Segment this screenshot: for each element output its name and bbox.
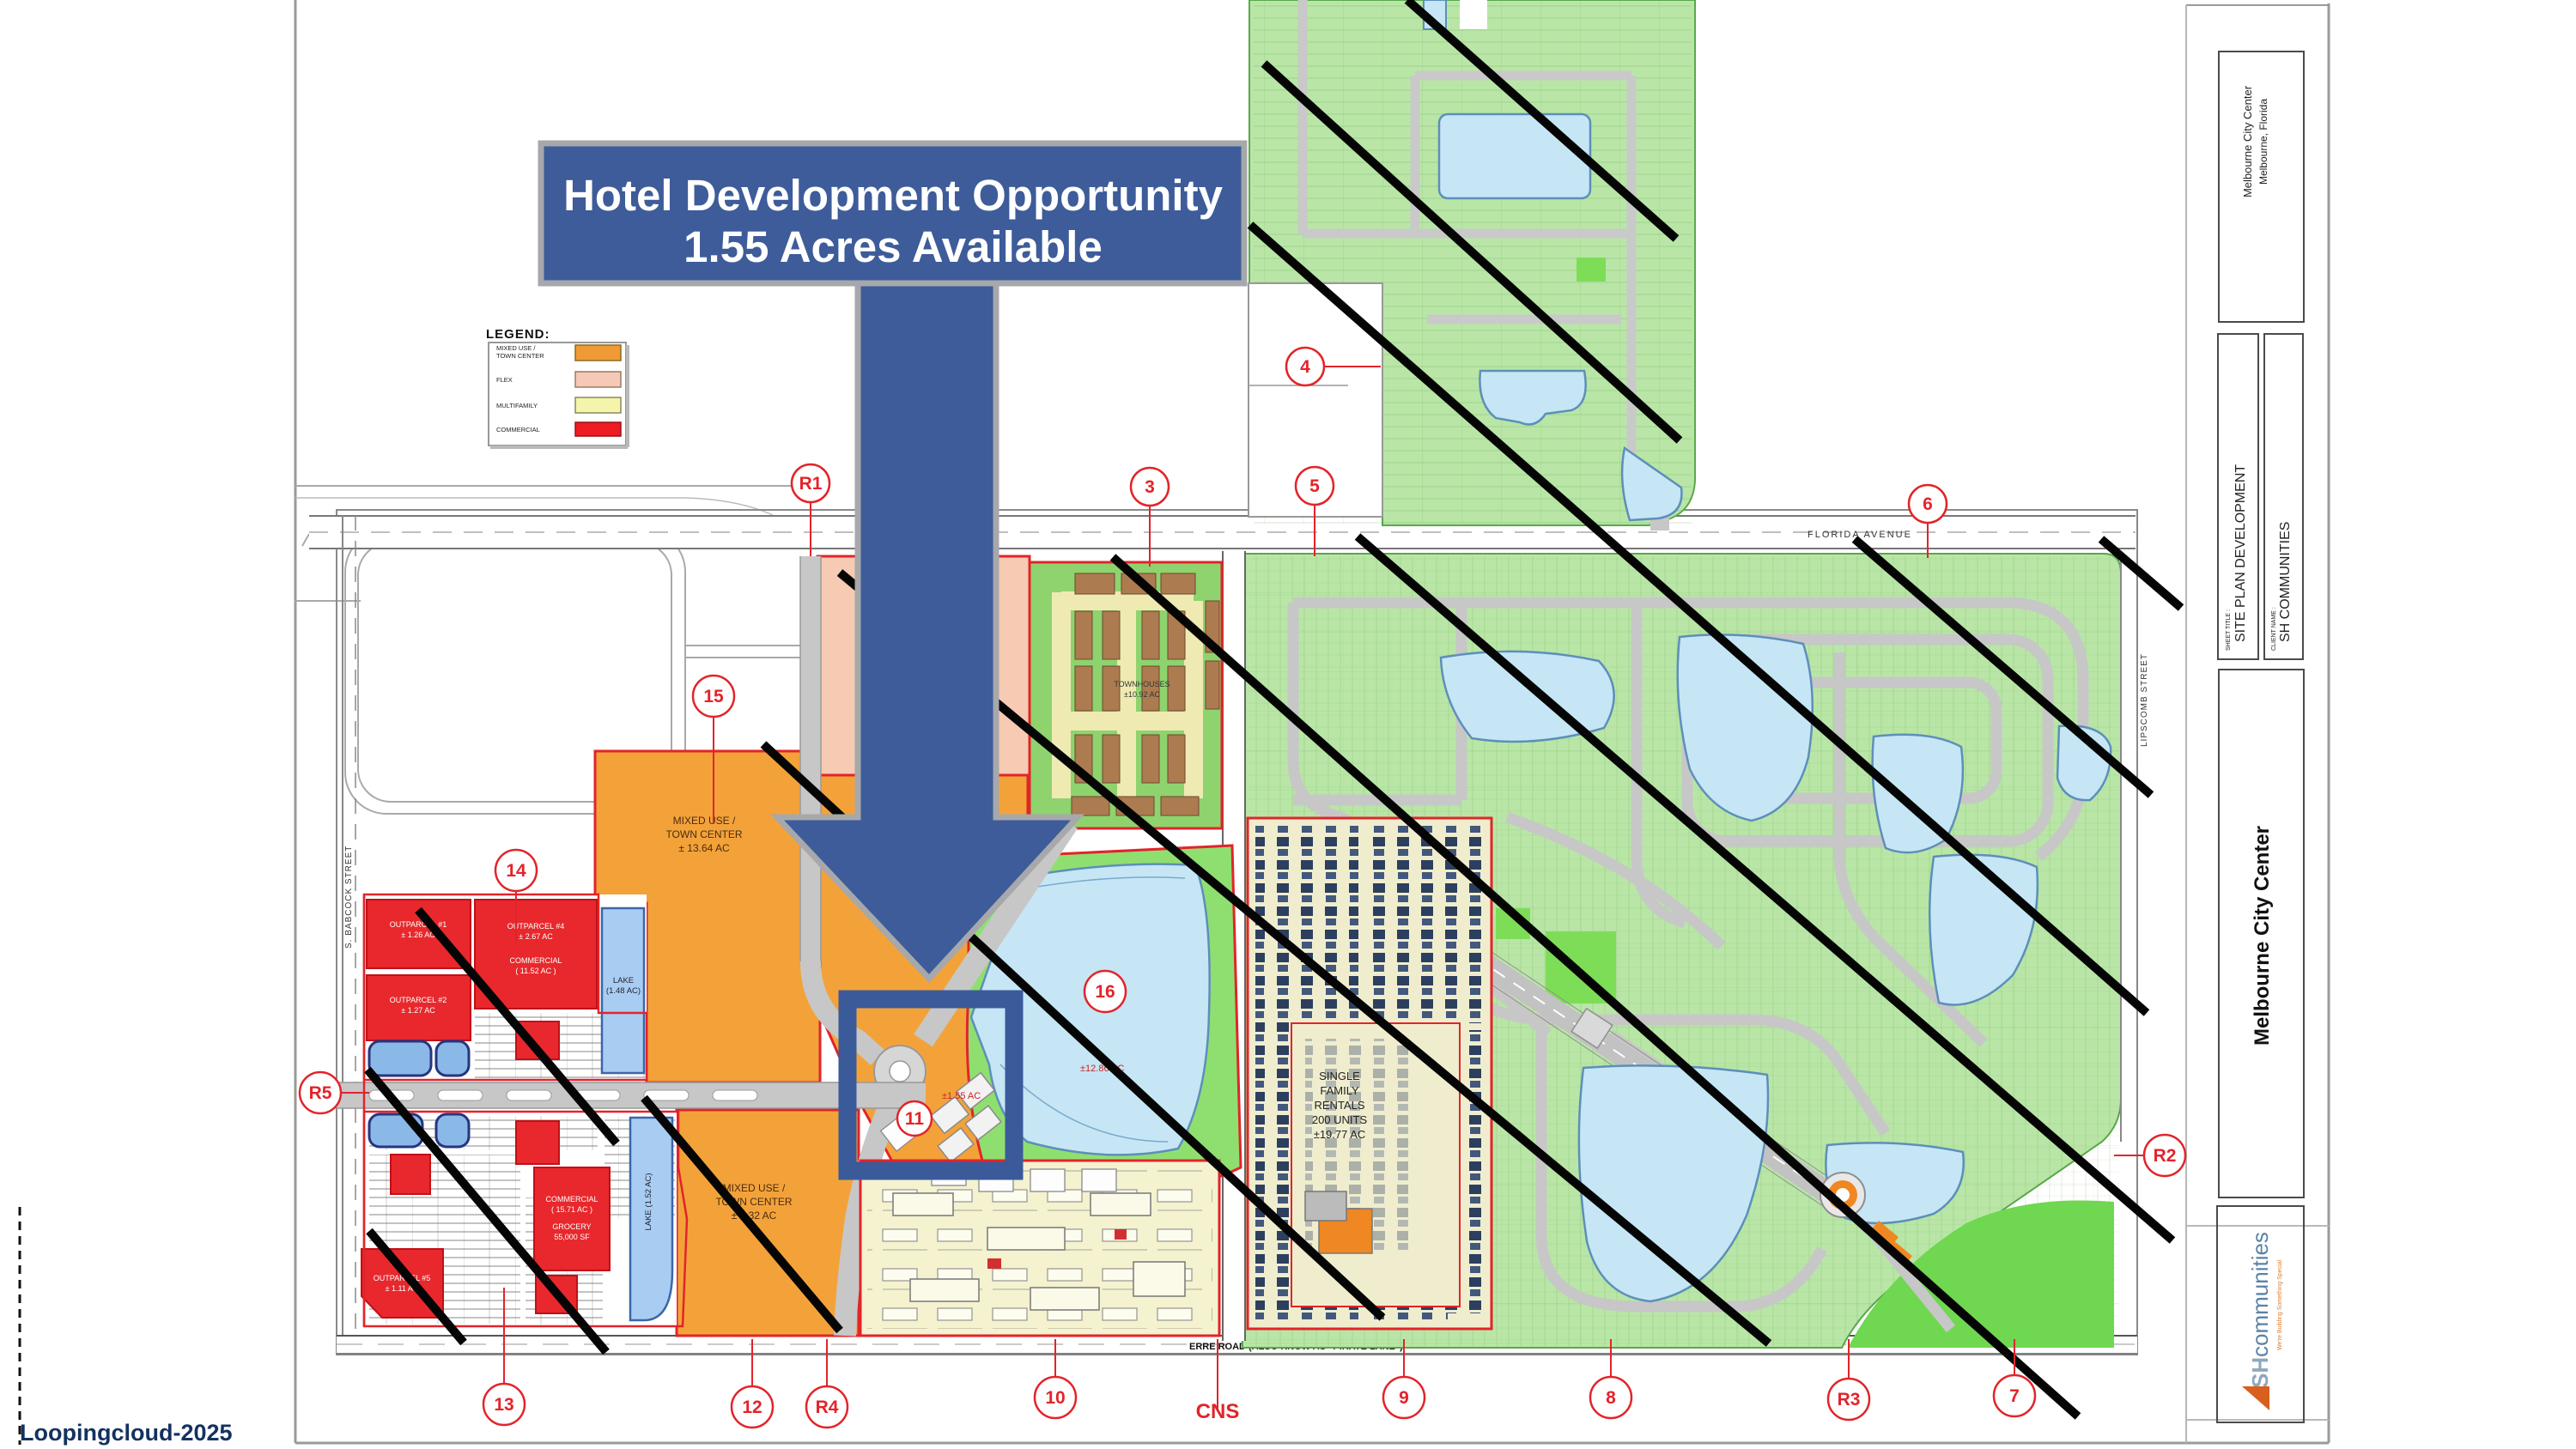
svg-text:6: 6	[1923, 494, 1933, 514]
svg-text:200 UNITS: 200 UNITS	[1312, 1113, 1368, 1126]
svg-text:15: 15	[703, 687, 724, 706]
svg-text:SINGLE: SINGLE	[1319, 1070, 1360, 1082]
svg-text:R3: R3	[1838, 1390, 1861, 1410]
svg-text:1.55 Acres Available: 1.55 Acres Available	[683, 222, 1103, 271]
svg-text:SITE PLAN DEVELOPMENT: SITE PLAN DEVELOPMENT	[2233, 464, 2248, 642]
svg-text:8: 8	[1606, 1388, 1616, 1408]
svg-text:(1.48 AC): (1.48 AC)	[606, 986, 641, 996]
svg-text:( 15.71 AC ): ( 15.71 AC )	[551, 1205, 592, 1214]
svg-text:TOWN CENTER: TOWN CENTER	[665, 828, 742, 840]
svg-text:7: 7	[2009, 1386, 2020, 1406]
svg-text:R2: R2	[2154, 1146, 2177, 1166]
svg-text:MIXED USE /: MIXED USE /	[673, 815, 736, 827]
svg-text:± 1.26 AC: ± 1.26 AC	[401, 931, 435, 939]
svg-text:SH: SH	[2247, 1357, 2273, 1388]
svg-text:11: 11	[905, 1109, 925, 1129]
svg-text:14: 14	[506, 861, 526, 881]
svg-text:FLEX: FLEX	[496, 376, 513, 384]
svg-text:10: 10	[1045, 1388, 1065, 1408]
svg-text:12: 12	[742, 1397, 762, 1417]
svg-text:Melbourne City Center: Melbourne City Center	[2251, 826, 2274, 1046]
svg-text:SHEET TITLE :: SHEET TITLE :	[2226, 609, 2232, 651]
svg-text:( 11.52 AC ): ( 11.52 AC )	[515, 967, 556, 975]
svg-text:GROCERY: GROCERY	[552, 1222, 591, 1231]
svg-text:Loopingcloud-2025: Loopingcloud-2025	[20, 1420, 233, 1446]
svg-text:16: 16	[1095, 982, 1115, 1002]
svg-text:CLIENT NAME :: CLIENT NAME :	[2271, 607, 2277, 651]
svg-text:LIPSCOMB STREET: LIPSCOMB STREET	[2140, 653, 2149, 747]
svg-text:±19.77 AC: ±19.77 AC	[1314, 1128, 1366, 1141]
svg-text:MIXED USE /: MIXED USE /	[496, 344, 536, 352]
svg-text:S. BABCOCK STREET: S. BABCOCK STREET	[344, 846, 354, 949]
svg-text:COMMERCIAL: COMMERCIAL	[545, 1195, 598, 1203]
svg-text:Melbourne, Florida: Melbourne, Florida	[2257, 99, 2269, 185]
svg-text:±10.92 AC: ±10.92 AC	[1124, 690, 1160, 699]
svg-text:LAKE: LAKE	[613, 976, 634, 985]
svg-text:Melbourne City Center: Melbourne City Center	[2241, 85, 2254, 197]
svg-text:9: 9	[1399, 1388, 1409, 1408]
svg-text:communities: communities	[2247, 1232, 2273, 1357]
svg-text:RENTALS: RENTALS	[1315, 1099, 1365, 1112]
svg-text:TOWNHOUSES: TOWNHOUSES	[1114, 680, 1170, 688]
svg-text:MIXED USE /: MIXED USE /	[723, 1182, 786, 1194]
svg-text:Hotel Development Opportunity: Hotel Development Opportunity	[563, 171, 1224, 220]
svg-text:R4: R4	[816, 1397, 839, 1417]
svg-text:LAKE (1.52 AC): LAKE (1.52 AC)	[644, 1173, 653, 1230]
svg-text:4: 4	[1300, 357, 1310, 377]
svg-text:±1.55 AC: ±1.55 AC	[942, 1091, 981, 1101]
svg-text:± 1.27 AC: ± 1.27 AC	[401, 1006, 435, 1015]
svg-text:OUTPARCEL #2: OUTPARCEL #2	[390, 996, 447, 1004]
svg-text:± 13.64 AC: ± 13.64 AC	[678, 842, 730, 854]
svg-text:5: 5	[1309, 476, 1320, 496]
svg-text:55,000 SF: 55,000 SF	[554, 1233, 590, 1241]
svg-text:3: 3	[1145, 477, 1155, 497]
svg-text:We're Building Something Speci: We're Building Something Special	[2277, 1259, 2283, 1350]
svg-text:MULTIFAMILY: MULTIFAMILY	[496, 402, 538, 409]
svg-text:R1: R1	[799, 474, 823, 494]
svg-text:COMMERCIAL: COMMERCIAL	[509, 956, 562, 965]
svg-text:SH COMMUNITIES: SH COMMUNITIES	[2278, 522, 2293, 642]
svg-text:CNS: CNS	[1196, 1400, 1240, 1423]
svg-text:13: 13	[494, 1395, 513, 1415]
svg-text:LEGEND:: LEGEND:	[486, 327, 550, 342]
svg-text:TOWN CENTER: TOWN CENTER	[496, 352, 544, 360]
svg-text:COMMERCIAL: COMMERCIAL	[496, 426, 540, 433]
svg-text:FAMILY: FAMILY	[1320, 1084, 1359, 1097]
svg-text:± 2.67 AC: ± 2.67 AC	[519, 932, 553, 941]
svg-text:R5: R5	[309, 1083, 332, 1103]
